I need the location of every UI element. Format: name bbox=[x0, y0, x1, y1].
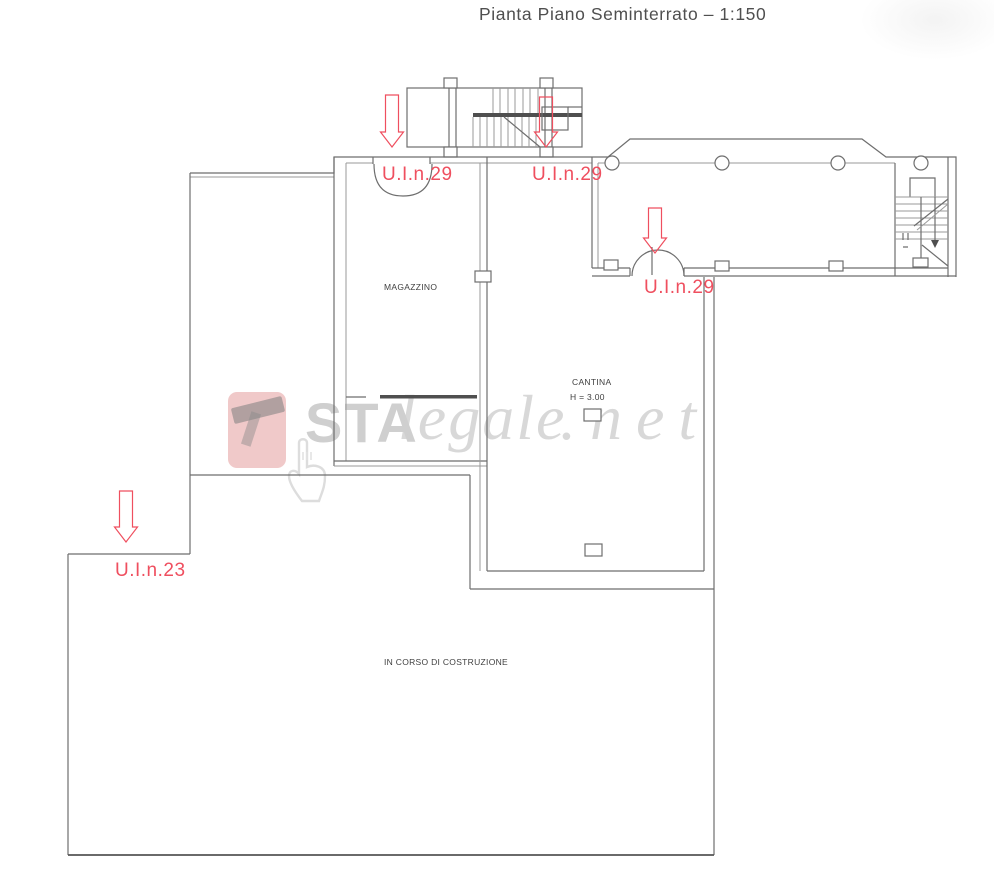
unit-arrow-29-wing-icon bbox=[644, 208, 667, 253]
room-label-cantina: CANTINA bbox=[572, 377, 611, 387]
outer-walls bbox=[68, 139, 956, 855]
room-label-cantina-height: H = 3.00 bbox=[570, 392, 605, 402]
unit-label-29-wing: U.I.n.29 bbox=[644, 277, 715, 299]
wing-door bbox=[632, 247, 684, 276]
room-label-magazzino: MAGAZZINO bbox=[384, 282, 437, 292]
unit-label-29-top-right: U.I.n.29 bbox=[532, 164, 603, 186]
top-staircase bbox=[407, 78, 582, 157]
floor-plan-drawing bbox=[0, 0, 994, 886]
cantina-fixtures bbox=[584, 409, 602, 556]
unit-label-23: U.I.n.23 bbox=[115, 560, 186, 582]
unit-arrow-23-icon bbox=[115, 491, 138, 542]
wing-column-bases bbox=[604, 260, 843, 271]
floor-plan-canvas: STA legale .net bbox=[0, 0, 994, 886]
unit-arrow-29-top-left-icon bbox=[381, 95, 404, 147]
wing-staircase bbox=[895, 178, 948, 267]
plan-title: Pianta Piano Seminterrato – 1:150 bbox=[479, 4, 766, 25]
room-label-construction: IN CORSO DI COSTRUZIONE bbox=[384, 657, 508, 667]
unit-label-29-top-left: U.I.n.29 bbox=[382, 164, 453, 186]
